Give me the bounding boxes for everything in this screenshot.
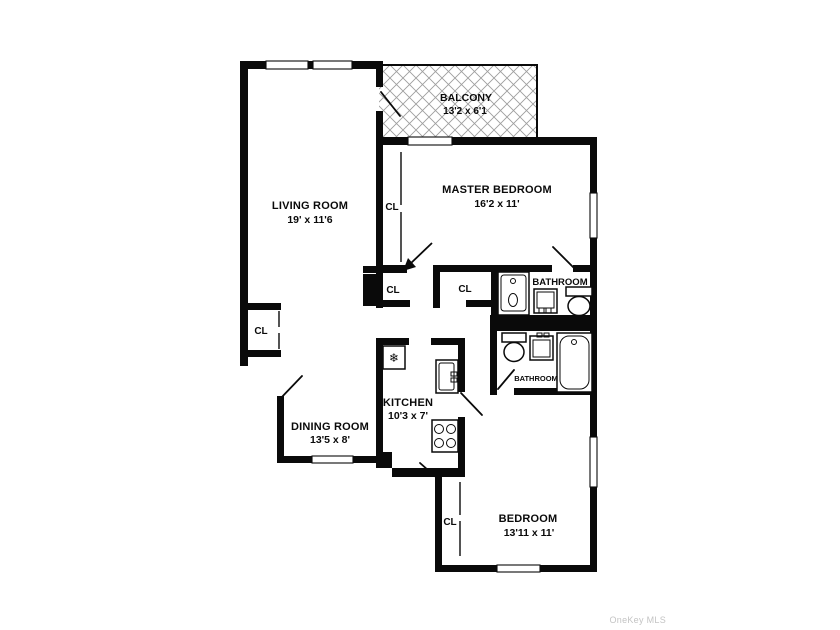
closet-label-living: CL: [254, 326, 267, 337]
window-bedroom-bottom: [497, 565, 540, 572]
closet-label-bedroom: CL: [443, 517, 456, 528]
wall-dining-bottom-b: [353, 456, 392, 463]
window-master-right: [590, 193, 597, 238]
dining-room-label: DINING ROOM: [291, 421, 369, 433]
balcony-label: BALCONY: [440, 92, 492, 104]
bedroom-dims: 13'11 x 11': [504, 527, 555, 539]
refrigerator-icon: ❄: [383, 346, 405, 369]
master-bedroom-label: MASTER BEDROOM: [442, 184, 552, 196]
wall-hall-closet2-left: [433, 265, 440, 308]
refrigerator-glyph: ❄: [389, 351, 399, 365]
window-living-b: [313, 61, 352, 69]
toilet-lower-tank: [502, 333, 526, 342]
wall-master-top-b: [452, 137, 597, 145]
balcony-dims: 13'2 x 6'1: [443, 106, 487, 117]
wall-living-closet-top: [240, 303, 281, 310]
wall-dining-bottom-a: [277, 456, 312, 463]
wall-kitchen-left: [376, 338, 383, 452]
wall-hall-closet-top: [363, 266, 407, 273]
kitchen-dims: 10'3 x 7': [388, 410, 428, 422]
window-living-a: [266, 61, 308, 69]
watermark: OneKey MLS: [609, 615, 666, 625]
wall-bedroom-closet-top: [435, 468, 463, 477]
wall-right-c: [590, 487, 597, 572]
bathtub-icon: [557, 333, 592, 392]
toilet-upper-tank: [566, 287, 592, 296]
wall-bedroom-left: [435, 468, 442, 572]
stove-box: [432, 420, 458, 452]
bedroom-label: BEDROOM: [499, 513, 558, 525]
wall-hall-closet2-bottom: [466, 300, 498, 307]
dining-room-dims: 13'5 x 8': [310, 434, 350, 446]
wall-master-top-a: [378, 137, 408, 145]
wall-living-right-stub: [376, 61, 383, 87]
wall-hall-closet-bottom: [377, 300, 410, 307]
wall-bathroom-divider-band: [490, 315, 597, 331]
closet-label-hall: CL: [386, 285, 399, 296]
kitchen-label: KITCHEN: [383, 397, 433, 409]
wall-bedroom-bottom-b: [540, 565, 597, 572]
closet-label-hall2: CL: [458, 284, 471, 295]
toilet-lower-icon: [502, 333, 526, 362]
wall-living-top-mullion: [308, 61, 313, 69]
wall-living-closet-bottom: [240, 350, 281, 357]
window-master-balcony: [408, 137, 452, 145]
window-dining: [312, 456, 353, 463]
kitchen-sink-icon: [436, 360, 458, 393]
toilet-upper-bowl: [568, 297, 590, 316]
living-room-label: LIVING ROOM: [272, 200, 348, 212]
wall-hall-closet-block: [363, 274, 379, 306]
bathroom-upper-label: BATHROOM: [532, 277, 587, 288]
sink-lower-icon: [530, 333, 553, 360]
toilet-upper-icon: [566, 287, 592, 316]
wall-bathroom-lower-left: [490, 331, 497, 395]
wall-dining-left: [277, 396, 284, 463]
shower-icon: [498, 272, 529, 315]
stove-icon: [432, 420, 458, 452]
window-bedroom-right: [590, 437, 597, 487]
bathroom-lower-label: BATHROOM: [514, 374, 558, 383]
living-room-dims: 19' x 11'6: [287, 214, 332, 226]
wall-living-left: [240, 61, 248, 366]
wall-kitchen-right-a: [458, 338, 465, 392]
wall-hall-closet2-right: [491, 265, 498, 317]
master-bedroom-dims: 16'2 x 11': [474, 198, 519, 210]
bathtub-outer: [557, 333, 592, 392]
wall-right-a: [590, 137, 597, 193]
floor-plan: ❄: [0, 0, 840, 630]
closet-label-master: CL: [385, 202, 398, 213]
wall-bedroom-bottom-a: [435, 565, 497, 572]
sink-upper-icon: [534, 289, 557, 313]
toilet-lower-bowl: [504, 343, 524, 362]
